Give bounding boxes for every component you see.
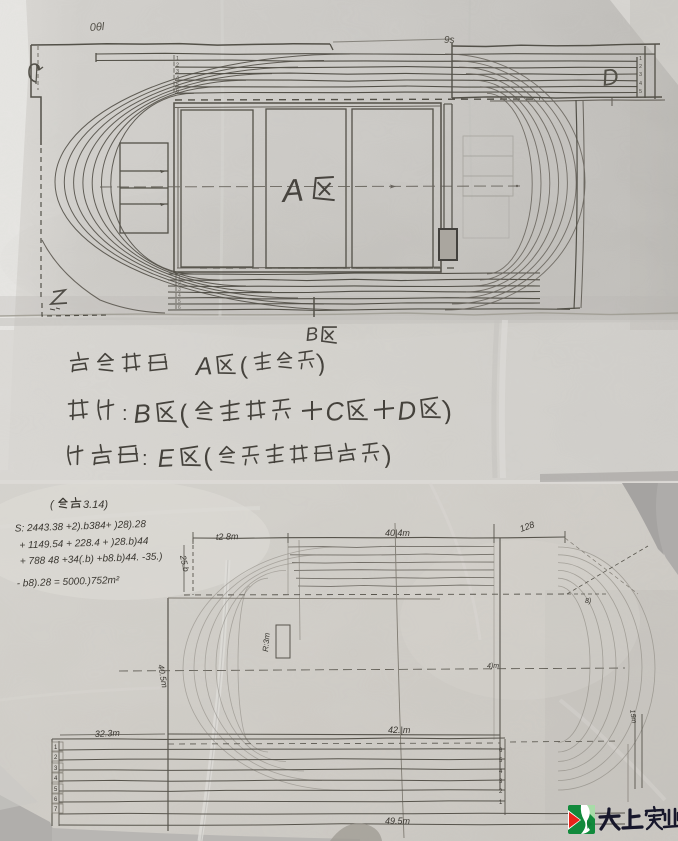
- svg-text:6: 6: [178, 305, 181, 311]
- svg-text:49.5m: 49.5m: [385, 816, 411, 826]
- svg-text:8): 8): [585, 598, 591, 605]
- svg-text:A: A: [279, 172, 305, 210]
- svg-text:E: E: [157, 444, 175, 473]
- svg-text:1: 1: [176, 56, 179, 62]
- svg-text:(: (: [239, 353, 248, 380]
- svg-text:3: 3: [639, 72, 642, 78]
- svg-text:5: 5: [639, 89, 642, 95]
- svg-text:2: 2: [176, 62, 179, 68]
- svg-text:4)m: 4)m: [487, 663, 499, 670]
- svg-text:C: C: [324, 396, 345, 427]
- svg-text:3.14): 3.14): [83, 499, 108, 511]
- svg-text:4: 4: [178, 293, 181, 299]
- svg-text:B: B: [305, 324, 320, 346]
- svg-text::: :: [142, 448, 148, 470]
- svg-text:1: 1: [639, 56, 642, 62]
- svg-text:4: 4: [639, 81, 642, 87]
- svg-text:R:3m: R:3m: [261, 632, 272, 652]
- svg-text::: :: [122, 403, 128, 425]
- svg-text:D: D: [396, 395, 417, 426]
- svg-text:32.3m: 32.3m: [95, 728, 121, 739]
- svg-text:9s: 9s: [444, 35, 455, 46]
- svg-text:5: 5: [178, 299, 181, 305]
- svg-text:42.|m: 42.|m: [388, 725, 411, 735]
- svg-text:t2 8m: t2 8m: [216, 531, 239, 542]
- svg-text:3: 3: [176, 69, 179, 75]
- svg-text:A: A: [193, 352, 213, 381]
- svg-text:2: 2: [639, 64, 642, 70]
- svg-text:3: 3: [178, 287, 181, 293]
- svg-text:40|4m: 40|4m: [385, 528, 410, 538]
- svg-text:B: B: [132, 398, 151, 429]
- svg-text:0θl: 0θl: [89, 21, 105, 34]
